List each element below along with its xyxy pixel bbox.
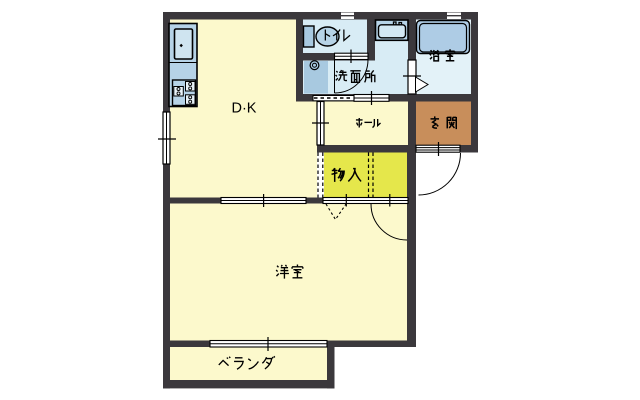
svg-text:D·K: D·K <box>232 101 257 117</box>
